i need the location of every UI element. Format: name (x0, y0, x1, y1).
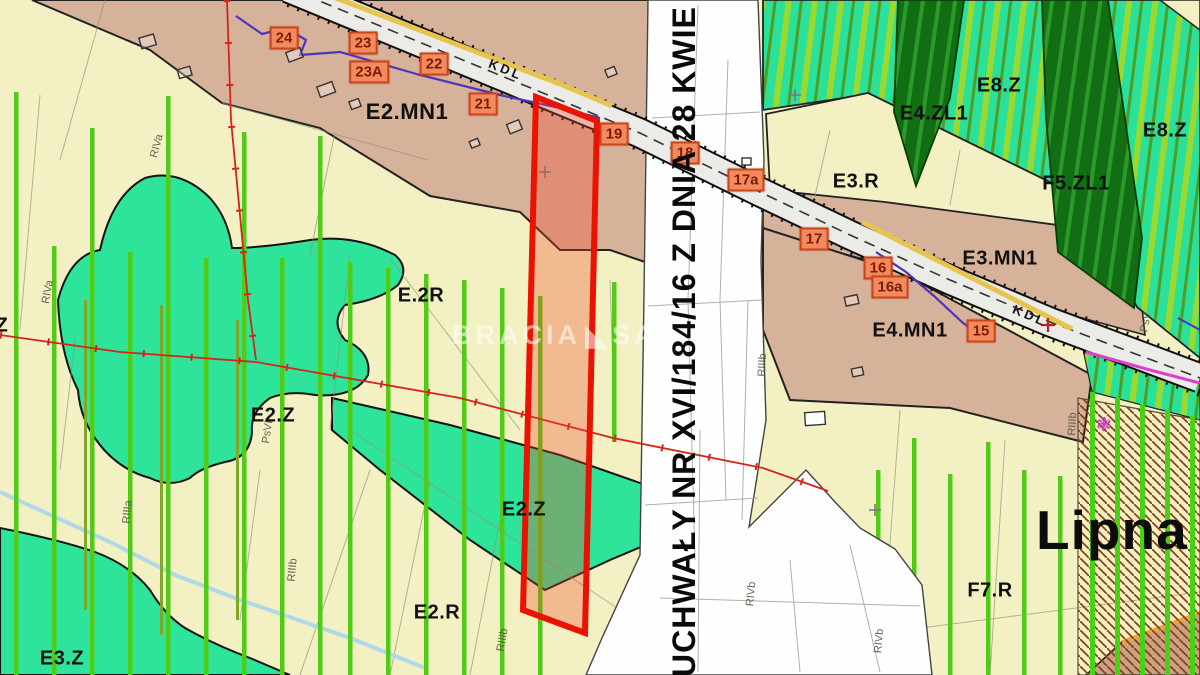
zone-label-e3r: E3.R (833, 171, 879, 194)
zone-label-e2r-lower: E2.R (414, 602, 460, 625)
zone-label-e2mn1: E2.MN1 (366, 99, 448, 125)
zone-label-e8z-west: E8.Z (977, 75, 1021, 98)
soil-label: RIIIa (121, 500, 135, 524)
watermark-triangle-icon: ◣ (585, 321, 608, 351)
zone-label-e4mn1: E4.MN1 (872, 320, 947, 343)
zone-label-e3z: E3.Z (40, 648, 84, 671)
resolution-vertical-text: UCHWAŁY NR XVI/184/16 Z DNIA 28 KWIE (666, 0, 703, 675)
soil-label: RIIIb (1066, 412, 1079, 436)
zone-label-f7r: F7.R (967, 580, 1012, 603)
map-marker-17: 17 (800, 228, 829, 251)
zone-label-e2z-south: E2.Z (502, 499, 546, 522)
map-marker-23: 23 (349, 32, 378, 55)
zone-label-e2r-upper: E.2R (398, 285, 444, 308)
map-marker-22: 22 (420, 53, 449, 76)
flower-symbol: ❃ (1096, 414, 1112, 437)
zone-label-f5zl1: F5.ZL1 (1042, 173, 1109, 196)
watermark: BRACIA ◣ SA (452, 320, 658, 351)
zone-label-z-edge: Z (0, 315, 8, 338)
map-marker-23a: 23A (349, 61, 389, 84)
map-marker-24: 24 (270, 27, 299, 50)
soil-label: RIVb (744, 581, 758, 606)
watermark-text-right: SA (612, 320, 658, 351)
soil-label: RIIIb (286, 558, 300, 582)
highlighted-parcel-outline (523, 97, 597, 633)
place-name-lipna: Lipna (1036, 498, 1188, 562)
map-marker-17a: 17a (727, 169, 764, 192)
map-marker-19: 19 (600, 123, 629, 146)
map-marker-15: 15 (967, 320, 996, 343)
zone-label-e3mn1: E3.MN1 (962, 248, 1037, 271)
soil-label: RIIIb (756, 353, 769, 377)
soil-label: RIVb (872, 628, 886, 653)
zone-label-e8z-east: E8.Z (1143, 120, 1187, 143)
zone-label-e4zl1: E4.ZL1 (900, 103, 969, 126)
zoning-map: E2.MN1 E.2R E2.Z E2.Z E2.R E3.Z E3.R E3.… (0, 0, 1200, 675)
map-marker-21: 21 (469, 93, 498, 116)
watermark-text-left: BRACIA (452, 320, 581, 351)
map-marker-16a: 16a (871, 276, 908, 299)
